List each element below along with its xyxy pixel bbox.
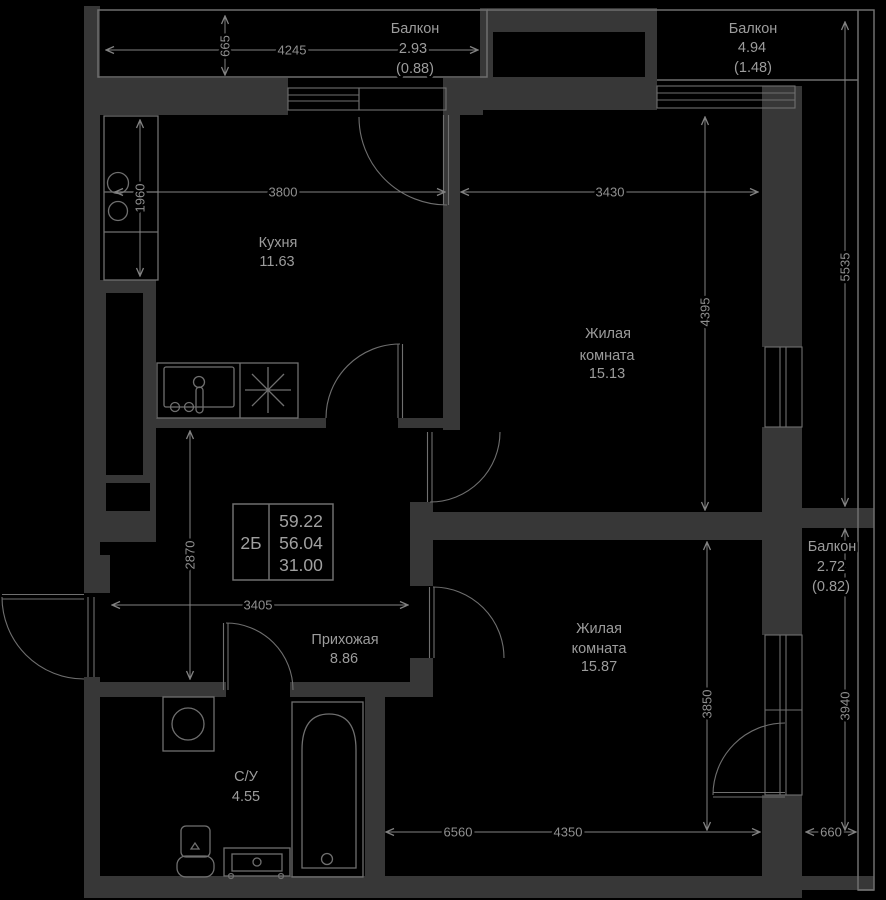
dim-2870: 2870 xyxy=(183,541,198,570)
dim-4245: 4245 xyxy=(278,43,307,58)
wall-segment xyxy=(443,78,460,430)
drain-icon xyxy=(322,854,333,865)
svg-text:Жилая: Жилая xyxy=(585,326,631,342)
unit-type: 2Б xyxy=(240,533,261,553)
wall-segment xyxy=(762,508,874,528)
room-label-hall: Прихожая 8.86 xyxy=(311,632,378,667)
door-bathroom xyxy=(224,623,294,690)
dim-6560: 6560 xyxy=(444,825,473,840)
door-kitchen-hall xyxy=(326,344,403,418)
floor-plan-svg: 2Б 59.22 56.04 31.00 4245 665 3800 1960 … xyxy=(0,0,886,900)
wall-segment xyxy=(84,677,100,898)
window-kitchen xyxy=(288,88,446,110)
svg-text:Прихожая: Прихожая xyxy=(311,632,378,648)
dim-3430: 3430 xyxy=(596,185,625,200)
dim-4395: 4395 xyxy=(698,298,713,327)
dim-3850: 3850 xyxy=(700,690,715,719)
svg-text:Кухня: Кухня xyxy=(259,235,298,251)
svg-text:комната: комната xyxy=(580,348,636,364)
room-label-balcony-right: Балкон 2.72 (0.82) xyxy=(808,539,857,595)
room-label-living2: Жилая комната 15.87 xyxy=(572,621,628,675)
wall-segment xyxy=(84,876,802,898)
dim-665: 665 xyxy=(218,35,233,57)
wall-segment xyxy=(84,555,110,593)
dim-5535: 5535 xyxy=(838,253,853,282)
balcony-outlines xyxy=(98,10,874,890)
door-arc xyxy=(326,344,400,418)
kitchen-appliance-column xyxy=(104,116,158,280)
svg-text:11.63: 11.63 xyxy=(259,254,294,270)
room-label-balcony-top-left: Балкон 2.93 (0.88) xyxy=(391,21,440,77)
door-living2-balcony xyxy=(713,723,785,797)
burner-icon xyxy=(109,202,128,221)
faucet-icon xyxy=(194,377,205,388)
unit-area-total: 59.22 xyxy=(279,511,323,531)
svg-text:2.72: 2.72 xyxy=(817,559,845,575)
svg-text:4.94: 4.94 xyxy=(738,40,766,56)
wall-segment xyxy=(84,682,226,697)
wall-segment xyxy=(762,795,802,876)
svg-text:2.93: 2.93 xyxy=(399,41,427,57)
svg-text:(0.88): (0.88) xyxy=(396,61,434,77)
door-entrance xyxy=(2,595,84,680)
washing-machine xyxy=(163,697,214,751)
wall-niche xyxy=(106,293,143,475)
svg-text:Балкон: Балкон xyxy=(808,539,857,555)
wall-segment xyxy=(410,540,433,586)
svg-text:(1.48): (1.48) xyxy=(734,60,772,76)
svg-text:Жилая: Жилая xyxy=(576,621,622,637)
wall-segment xyxy=(410,502,433,540)
room-label-balcony-top-right: Балкон 4.94 (1.48) xyxy=(729,21,778,76)
wall-segment xyxy=(762,528,802,635)
dim-3940: 3940 xyxy=(838,692,853,721)
dim-3405: 3405 xyxy=(244,598,273,613)
svg-text:комната: комната xyxy=(572,641,628,657)
wall-segment xyxy=(156,418,326,428)
door-arc xyxy=(430,432,500,502)
door-arc xyxy=(226,623,293,690)
wall-segment xyxy=(802,876,874,890)
door-arc xyxy=(433,587,504,658)
svg-text:Балкон: Балкон xyxy=(729,21,778,37)
wall-segment xyxy=(762,86,802,347)
window-living1-right xyxy=(765,347,802,427)
walls xyxy=(84,6,874,898)
bathtub xyxy=(292,702,363,877)
dimension-labels: 4245 665 3800 1960 3430 4395 5535 2870 3… xyxy=(133,35,853,839)
dim-4350: 4350 xyxy=(554,825,583,840)
svg-text:Балкон: Балкон xyxy=(391,21,440,37)
room-label-kitchen: Кухня 11.63 xyxy=(259,235,298,270)
wall-segment xyxy=(84,88,100,560)
unit-area-kitchen: 31.00 xyxy=(279,555,323,575)
hob-asterisk-icon xyxy=(245,367,291,413)
dim-3800: 3800 xyxy=(269,185,298,200)
wall-segment xyxy=(433,512,762,540)
burner-icon xyxy=(108,173,129,194)
dim-1960: 1960 xyxy=(133,184,148,213)
entrance-frame xyxy=(88,597,94,677)
room-label-living1: Жилая комната 15.13 xyxy=(580,326,636,382)
unit-area-living: 56.04 xyxy=(279,533,323,553)
toilet xyxy=(177,826,214,877)
vanity-sink xyxy=(224,848,290,879)
wall-segment xyxy=(84,78,288,115)
room-label-bath: С/У 4.55 xyxy=(232,769,260,805)
svg-text:(0.82): (0.82) xyxy=(812,579,850,595)
svg-text:15.87: 15.87 xyxy=(581,659,617,675)
dim-660: 660 xyxy=(820,825,842,840)
door-hall-living1 xyxy=(428,432,501,502)
shaft-opening xyxy=(493,32,645,77)
kitchen-counter xyxy=(157,363,298,418)
wall-segment xyxy=(365,697,385,876)
svg-text:8.86: 8.86 xyxy=(330,651,358,667)
balcony-right-outline xyxy=(487,10,874,890)
wall-segment xyxy=(398,418,445,428)
wall-segment xyxy=(290,682,433,697)
svg-text:С/У: С/У xyxy=(234,769,259,785)
svg-text:4.55: 4.55 xyxy=(232,789,260,805)
wall-niche xyxy=(106,483,150,511)
door-arc xyxy=(2,597,84,679)
door-arc xyxy=(713,723,785,795)
window-living2-balcony xyxy=(765,635,802,795)
svg-text:15.13: 15.13 xyxy=(589,366,625,382)
door-hall-living2 xyxy=(430,587,505,658)
wall-segment xyxy=(762,427,802,508)
floor-plan: 2Б 59.22 56.04 31.00 4245 665 3800 1960 … xyxy=(0,0,886,900)
unit-info-box: 2Б 59.22 56.04 31.00 xyxy=(233,504,333,580)
